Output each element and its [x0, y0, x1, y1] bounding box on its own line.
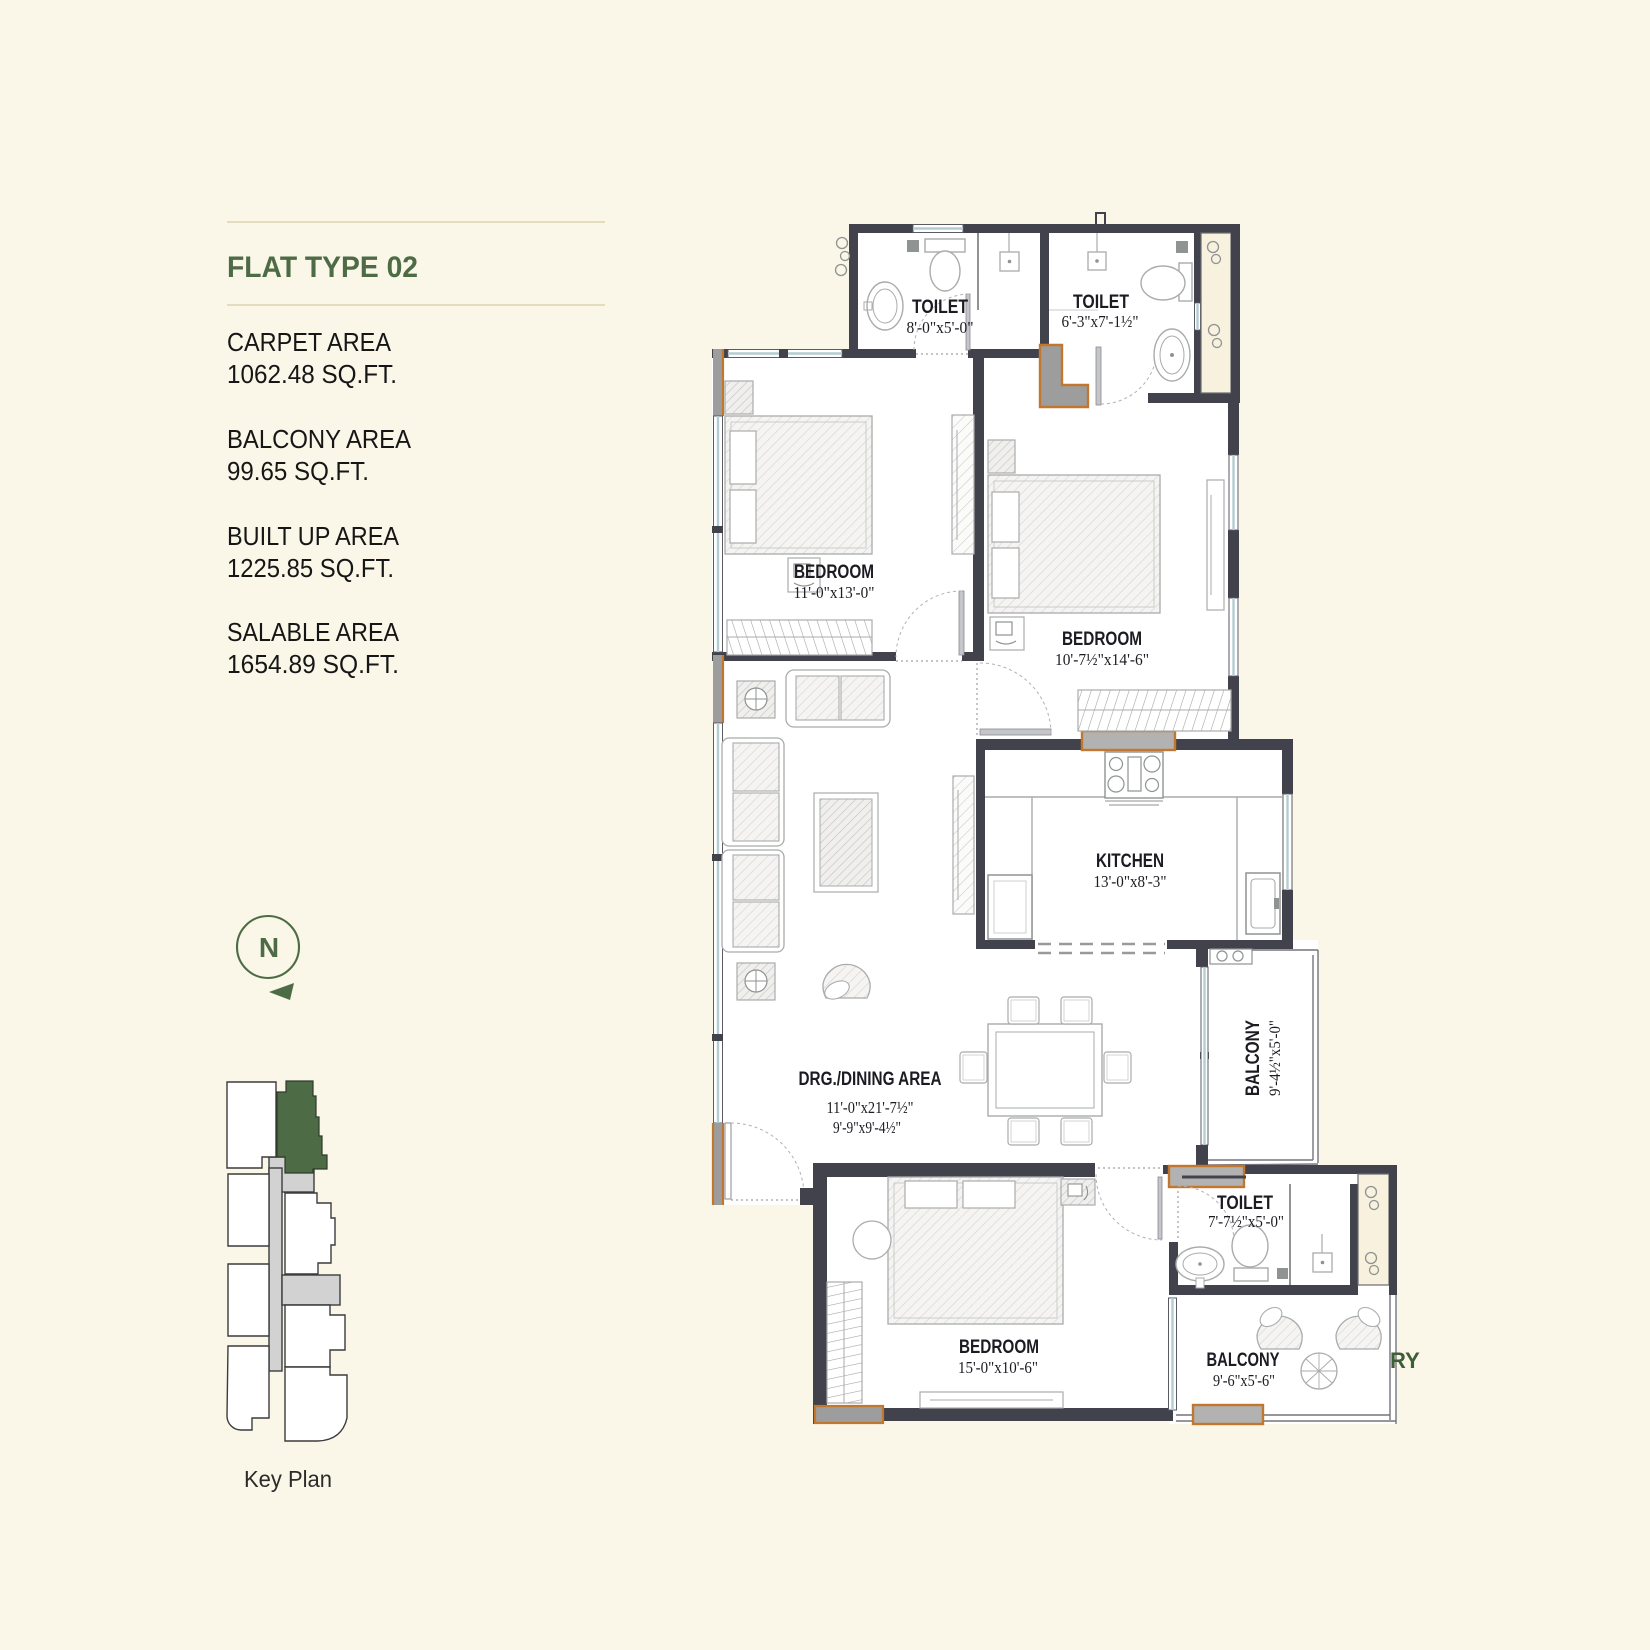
- svg-text:1225.85 SQ.FT.: 1225.85 SQ.FT.: [227, 553, 394, 583]
- svg-text:TOILET: TOILET: [912, 297, 968, 318]
- svg-text:Key Plan: Key Plan: [244, 1466, 332, 1492]
- svg-text:6'-3"x7'-1½": 6'-3"x7'-1½": [1062, 312, 1139, 331]
- svg-text:BALCONY AREA: BALCONY AREA: [227, 424, 412, 454]
- svg-text:1654.89 SQ.FT.: 1654.89 SQ.FT.: [227, 649, 399, 679]
- svg-text:DRG./DINING AREA: DRG./DINING AREA: [799, 1069, 942, 1090]
- svg-text:11'-0"x13'-0": 11'-0"x13'-0": [794, 583, 875, 602]
- svg-text:BEDROOM: BEDROOM: [959, 1337, 1039, 1358]
- svg-text:13'-0"x8'-3": 13'-0"x8'-3": [1094, 872, 1167, 891]
- svg-text:BALCONY: BALCONY: [1207, 1350, 1280, 1371]
- svg-text:9'-6"x5'-6": 9'-6"x5'-6": [1213, 1371, 1275, 1390]
- svg-text:10'-7½"x14'-6": 10'-7½"x14'-6": [1055, 650, 1149, 669]
- svg-text:BALCONY: BALCONY: [1243, 1020, 1264, 1096]
- svg-text:FLAT TYPE 02: FLAT TYPE 02: [227, 251, 418, 284]
- svg-text:BEDROOM: BEDROOM: [794, 562, 874, 583]
- svg-text:RY: RY: [1390, 1348, 1420, 1373]
- svg-text:SALABLE AREA: SALABLE AREA: [227, 617, 400, 647]
- svg-text:99.65 SQ.FT.: 99.65 SQ.FT.: [227, 456, 369, 486]
- svg-text:11'-0"x21'-7½": 11'-0"x21'-7½": [827, 1098, 914, 1117]
- svg-text:9'-9"x9'-4½": 9'-9"x9'-4½": [833, 1118, 901, 1137]
- svg-text:TOILET: TOILET: [1073, 292, 1129, 313]
- svg-text:1062.48 SQ.FT.: 1062.48 SQ.FT.: [227, 359, 397, 389]
- svg-text:9'-4½"x5'-0": 9'-4½"x5'-0": [1267, 1020, 1284, 1096]
- svg-text:N: N: [259, 932, 279, 963]
- svg-text:BEDROOM: BEDROOM: [1062, 629, 1142, 650]
- svg-text:BUILT UP AREA: BUILT UP AREA: [227, 521, 400, 551]
- svg-text:TOILET: TOILET: [1217, 1193, 1273, 1214]
- svg-text:7'-7½"x5'-0": 7'-7½"x5'-0": [1208, 1212, 1284, 1231]
- svg-text:CARPET AREA: CARPET AREA: [227, 327, 392, 357]
- svg-text:8'-0"x5'-0": 8'-0"x5'-0": [907, 318, 974, 337]
- svg-text:KITCHEN: KITCHEN: [1096, 851, 1164, 872]
- svg-text:15'-0"x10'-6": 15'-0"x10'-6": [958, 1358, 1038, 1377]
